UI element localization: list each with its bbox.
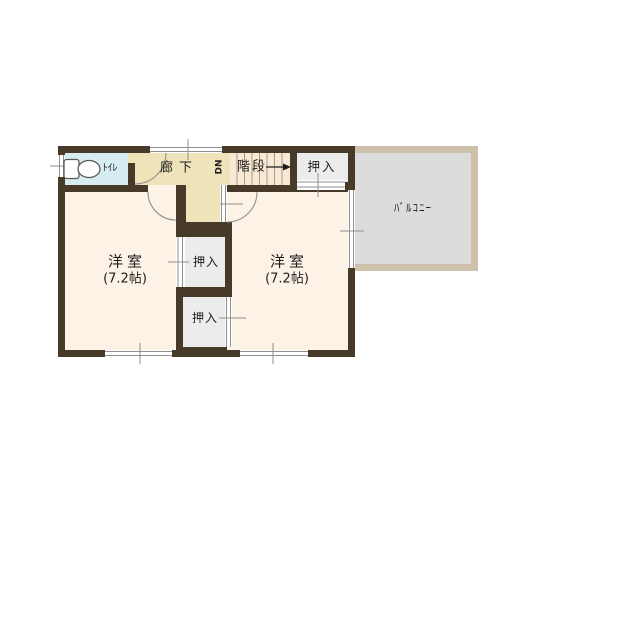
- hallway-stem: [186, 185, 220, 222]
- room-left-size: (7.2帖): [103, 273, 147, 286]
- closet-lower-label: 押入: [192, 312, 218, 324]
- room-right-size: (7.2帖): [265, 273, 309, 286]
- toilet-door-opening: [128, 153, 135, 163]
- wall-between-closets: [176, 287, 232, 297]
- closet-upper-label: 押入: [193, 256, 219, 268]
- balcony-label: ﾊﾞﾙｺﾆｰ: [394, 203, 432, 214]
- wall-closet-east: [225, 222, 232, 297]
- hallway-label: 廊下: [160, 162, 198, 175]
- room-right-label: 洋室: [270, 255, 308, 270]
- wall-stem-bottom: [176, 222, 226, 234]
- toilet-label: ﾄｲﾚ: [103, 164, 118, 174]
- stairs-label: 階段: [237, 161, 267, 174]
- closet-top-label: 押入: [307, 161, 336, 174]
- floorplan: ﾄｲﾚ 廊下 DN 階段 押入 押入 押入 洋室 (7.2帖) 洋室 (7.2帖…: [0, 0, 640, 640]
- room-toilet: [65, 153, 128, 185]
- stairs-direction-label: DN: [216, 159, 225, 174]
- room-left-label: 洋室: [108, 255, 146, 270]
- left-room-door-opening: [148, 185, 176, 192]
